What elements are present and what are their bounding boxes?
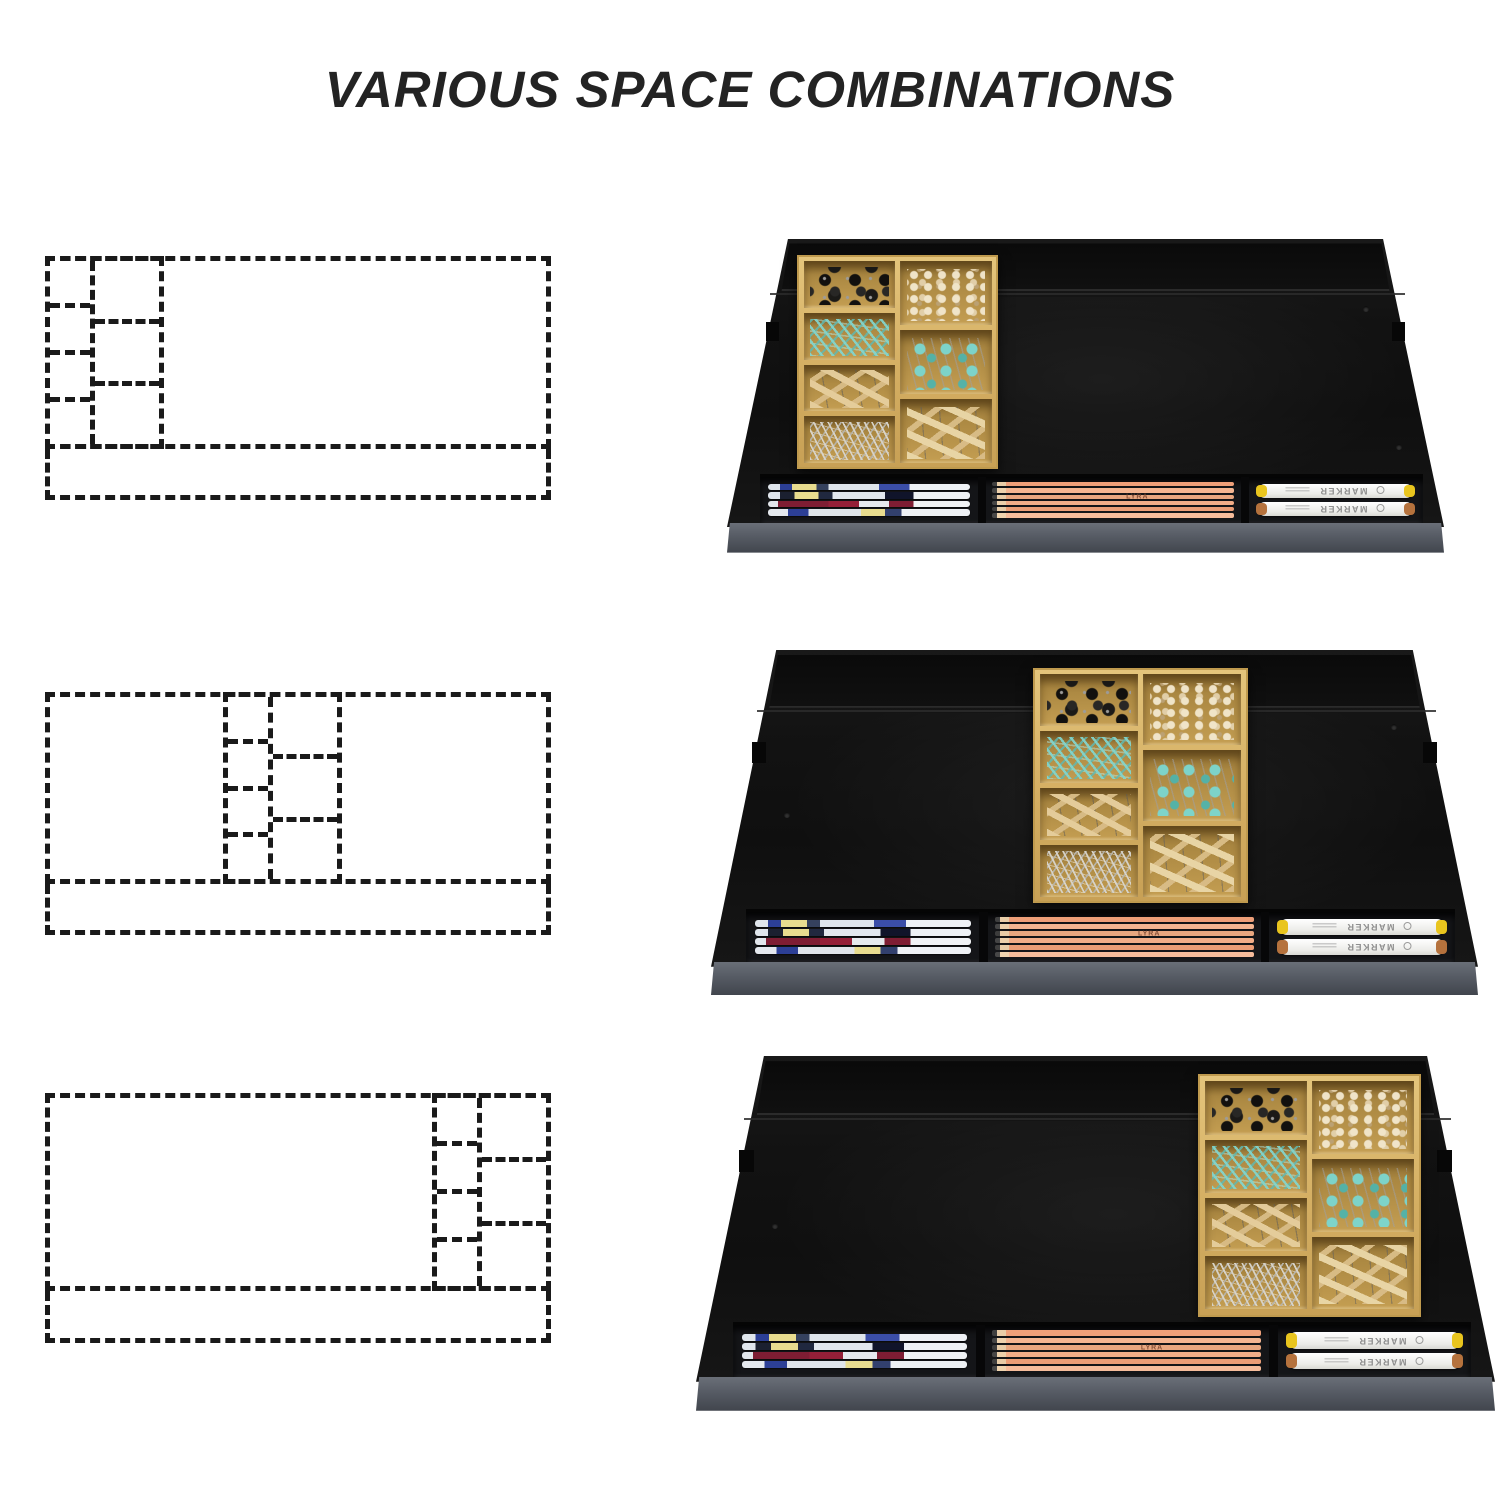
pen-tray-divider [1241, 477, 1249, 522]
bamboo-organizer-tray [1033, 668, 1248, 904]
marker-logo-icon [1403, 943, 1411, 951]
diagram-grid-left-column [228, 697, 273, 879]
marker-print: MARKER [1286, 486, 1385, 495]
bamboo-organizer-tray [797, 255, 998, 469]
diagram-grid-cell [273, 759, 337, 821]
marker-print: MARKER [1325, 1336, 1424, 1345]
compartment-safety-pins [1205, 1256, 1307, 1309]
diagram-grid-cell [228, 791, 268, 838]
page-title: VARIOUS SPACE COMBINATIONS [0, 60, 1500, 119]
diagram-grid-cell [437, 1242, 477, 1285]
gel-pen [768, 509, 970, 516]
screw [1363, 306, 1369, 312]
diagram-grid-cell [437, 1194, 477, 1242]
pen-tray: LYRA MARKER MARKER [746, 909, 1455, 962]
pencil [995, 917, 1254, 922]
compartment-push-pins [1312, 1081, 1414, 1154]
compartment-clothespins [804, 365, 895, 412]
pencil [992, 1366, 1261, 1371]
pencil-brand-label: LYRA [1126, 494, 1148, 501]
gel-pen [755, 929, 971, 936]
marker-label: MARKER [1346, 922, 1395, 931]
pencil [995, 945, 1254, 950]
marker-logo-icon [1416, 1337, 1424, 1345]
compartment-teal-paper-clips [1040, 731, 1138, 783]
gel-pens-section [733, 1325, 976, 1377]
diagram-grid-cell [95, 261, 159, 324]
pen-tray-divider [976, 1325, 985, 1377]
screw [784, 812, 790, 818]
gel-pen [768, 501, 970, 508]
markers-section: MARKER MARKER [1249, 477, 1423, 522]
side-tab [1392, 322, 1405, 341]
compartment-teal-binder-clips [1312, 1159, 1414, 1232]
layout-diagram-3 [45, 1093, 551, 1343]
pencil [995, 931, 1254, 936]
pencil [992, 1338, 1261, 1343]
marker-label: MARKER [1358, 1336, 1407, 1345]
compartment-small-clothespins [900, 399, 991, 463]
diagram-grid-cell [95, 324, 159, 387]
marker-logo-icon [1377, 505, 1385, 513]
marker-yellow: MARKER [1279, 919, 1445, 935]
drawer-photo-2: LYRA MARKER MARKER [711, 650, 1478, 1002]
tray-column-right [900, 261, 991, 463]
diagram-grid-right-column [482, 1098, 546, 1286]
compartment-black-binder-clips [1205, 1081, 1307, 1134]
tray-column-right [1143, 674, 1241, 896]
diagram-grid-cell [482, 1226, 546, 1285]
marker-fine-print [1286, 488, 1310, 494]
compartment-small-clothespins [1143, 826, 1241, 897]
marker-logo-icon [1416, 1357, 1424, 1365]
diagram-grid-cell [50, 402, 90, 444]
pencil [992, 1352, 1261, 1357]
diagram-organizer-grid [45, 256, 164, 449]
pencil [995, 924, 1254, 929]
pencil [992, 1359, 1261, 1364]
bamboo-organizer-tray [1198, 1074, 1422, 1317]
pencils-section: LYRA [988, 912, 1261, 962]
marker-print: MARKER [1325, 1357, 1424, 1366]
compartment-black-binder-clips [804, 261, 895, 308]
pencil [992, 1345, 1261, 1350]
pen-tray: LYRA MARKER MARKER [733, 1322, 1471, 1377]
marker-fine-print [1325, 1358, 1349, 1364]
marker-logo-icon [1403, 923, 1411, 931]
compartment-safety-pins [1040, 845, 1138, 897]
marker-label: MARKER [1358, 1357, 1407, 1366]
marker-fine-print [1325, 1338, 1349, 1344]
marker-label: MARKER [1319, 504, 1368, 513]
pen-tray-divider [1261, 912, 1270, 962]
drawer-front-lip [711, 962, 1478, 995]
gel-pen [768, 492, 970, 499]
diagram-grid-cell [228, 837, 268, 879]
marker-yellow: MARKER [1258, 484, 1413, 498]
pen-tray-divider [1269, 1325, 1278, 1377]
compartment-clothespins [1205, 1198, 1307, 1251]
compartment-safety-pins [804, 416, 895, 463]
diagram-grid-right-column [95, 261, 159, 444]
marker-fine-print [1286, 506, 1310, 512]
pen-tray-divider [978, 477, 986, 522]
pencil-brand-label: LYRA [1138, 930, 1160, 937]
gel-pen [742, 1343, 967, 1350]
diagram-grid-cell [228, 744, 268, 791]
drawer-front-lip [696, 1377, 1495, 1411]
pencil [995, 938, 1254, 943]
compartment-push-pins [900, 261, 991, 325]
gel-pen [768, 484, 970, 491]
pencil [992, 501, 1234, 505]
side-tab [766, 322, 779, 341]
side-tab [1437, 1150, 1451, 1172]
diagram-pen-tray-area [45, 449, 551, 500]
diagram-grid-cell [50, 308, 90, 355]
pen-tray-divider [979, 912, 988, 962]
pencil [992, 513, 1234, 517]
tray-column-right [1312, 1081, 1414, 1309]
marker-print: MARKER [1313, 942, 1412, 951]
compartment-black-binder-clips [1040, 674, 1138, 726]
diagram-grid-cell [482, 1098, 546, 1162]
pencil [992, 488, 1234, 492]
pencils-section: LYRA [985, 1325, 1269, 1377]
pencil [992, 1330, 1261, 1335]
compartment-teal-paper-clips [1205, 1140, 1307, 1193]
diagram-grid-cell [437, 1098, 477, 1146]
diagram-grid-cell [273, 697, 337, 759]
product-infographic: VARIOUS SPACE COMBINATIONS [0, 0, 1500, 1500]
diagram-organizer-grid [432, 1093, 551, 1291]
compartment-clothespins [1040, 788, 1138, 840]
drawer-photo-3: LYRA MARKER MARKER [696, 1056, 1495, 1418]
diagram-pen-tray-area [45, 884, 551, 935]
side-tab [1423, 742, 1437, 763]
compartment-push-pins [1143, 674, 1241, 745]
marker-print: MARKER [1286, 504, 1385, 513]
diagram-grid-cell [437, 1146, 477, 1194]
marker-logo-icon [1377, 487, 1385, 495]
gel-pens-section [760, 477, 978, 522]
diagram-grid-cell [228, 697, 268, 744]
tray-column-left [1040, 674, 1138, 896]
side-tab [752, 742, 766, 763]
gel-pen [742, 1334, 967, 1341]
markers-section: MARKER MARKER [1269, 912, 1455, 962]
pencil [992, 507, 1234, 511]
compartment-teal-paper-clips [804, 313, 895, 360]
diagram-grid-cell [273, 822, 337, 879]
compartment-small-clothespins [1312, 1237, 1414, 1310]
pencils-section: LYRA [986, 477, 1241, 522]
diagram-grid-cell [50, 261, 90, 308]
pen-tray: LYRA MARKER MARKER [760, 474, 1423, 522]
gel-pen [742, 1361, 967, 1368]
pencil [992, 482, 1234, 486]
marker-copper: MARKER [1258, 502, 1413, 516]
layout-diagram-2 [45, 692, 551, 935]
screw [772, 1223, 778, 1229]
gel-pen [755, 947, 971, 954]
marker-copper: MARKER [1279, 939, 1445, 955]
marker-print: MARKER [1313, 922, 1412, 931]
marker-fine-print [1313, 924, 1337, 930]
pencil [995, 952, 1254, 957]
tray-column-left [804, 261, 895, 463]
marker-yellow: MARKER [1288, 1332, 1461, 1348]
tray-column-left [1205, 1081, 1307, 1309]
layout-diagram-1 [45, 256, 551, 500]
marker-copper: MARKER [1288, 1353, 1461, 1369]
markers-section: MARKER MARKER [1278, 1325, 1471, 1377]
side-tab [739, 1150, 753, 1172]
diagram-grid-cell [95, 386, 159, 444]
compartment-teal-binder-clips [900, 330, 991, 394]
diagram-organizer-grid [223, 692, 342, 884]
pencil-brand-label: LYRA [1141, 1344, 1163, 1351]
gel-pens-section [746, 912, 979, 962]
compartment-teal-binder-clips [1143, 750, 1241, 821]
marker-fine-print [1313, 944, 1337, 950]
marker-label: MARKER [1346, 942, 1395, 951]
diagram-grid-right-column [273, 697, 337, 879]
drawer-front-lip [727, 523, 1444, 553]
diagram-grid-left-column [50, 261, 95, 444]
pencil [992, 495, 1234, 499]
gel-pen [755, 938, 971, 945]
diagram-pen-tray-area [45, 1291, 551, 1344]
diagram-grid-cell [50, 355, 90, 402]
gel-pen [755, 920, 971, 927]
diagram-grid-cell [482, 1162, 546, 1226]
marker-label: MARKER [1319, 486, 1368, 495]
gel-pen [742, 1352, 967, 1359]
diagram-grid-left-column [437, 1098, 482, 1286]
drawer-photo-1: LYRA MARKER MARKER [727, 239, 1444, 559]
